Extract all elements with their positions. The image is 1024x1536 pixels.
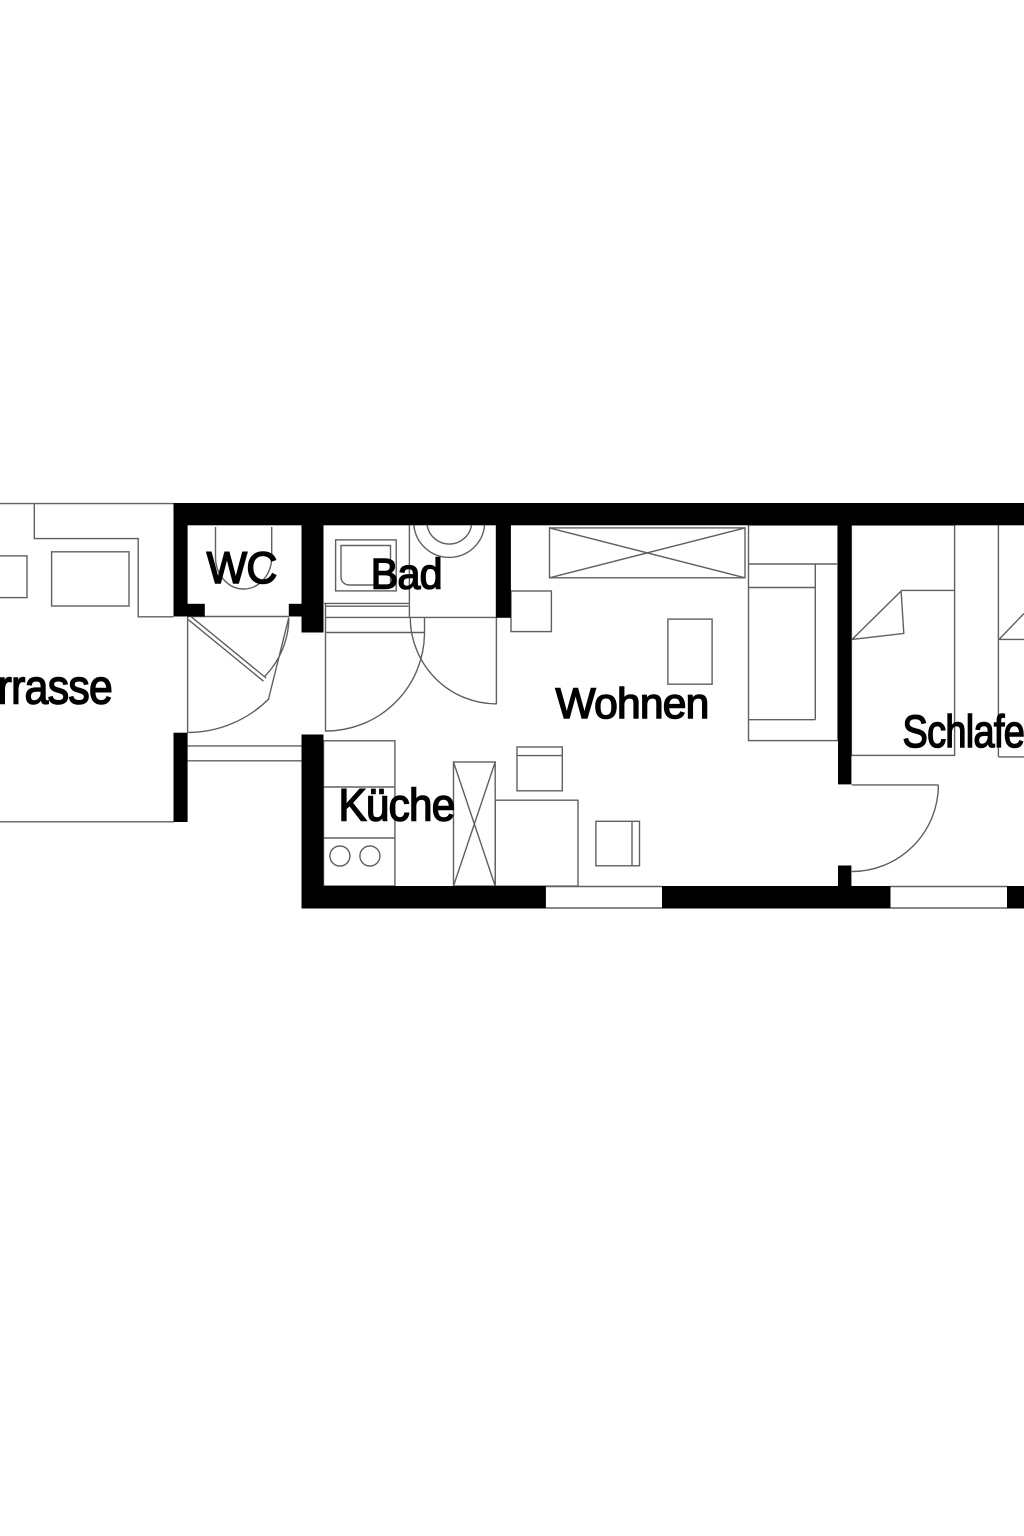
svg-text:Küche: Küche (339, 780, 455, 831)
svg-text:Schlafen: Schlafen (903, 706, 1024, 757)
svg-text:Wohnen: Wohnen (556, 680, 709, 728)
svg-text:Terrasse: Terrasse (0, 662, 112, 715)
svg-text:WC: WC (207, 544, 277, 593)
svg-text:Bad: Bad (371, 551, 442, 599)
